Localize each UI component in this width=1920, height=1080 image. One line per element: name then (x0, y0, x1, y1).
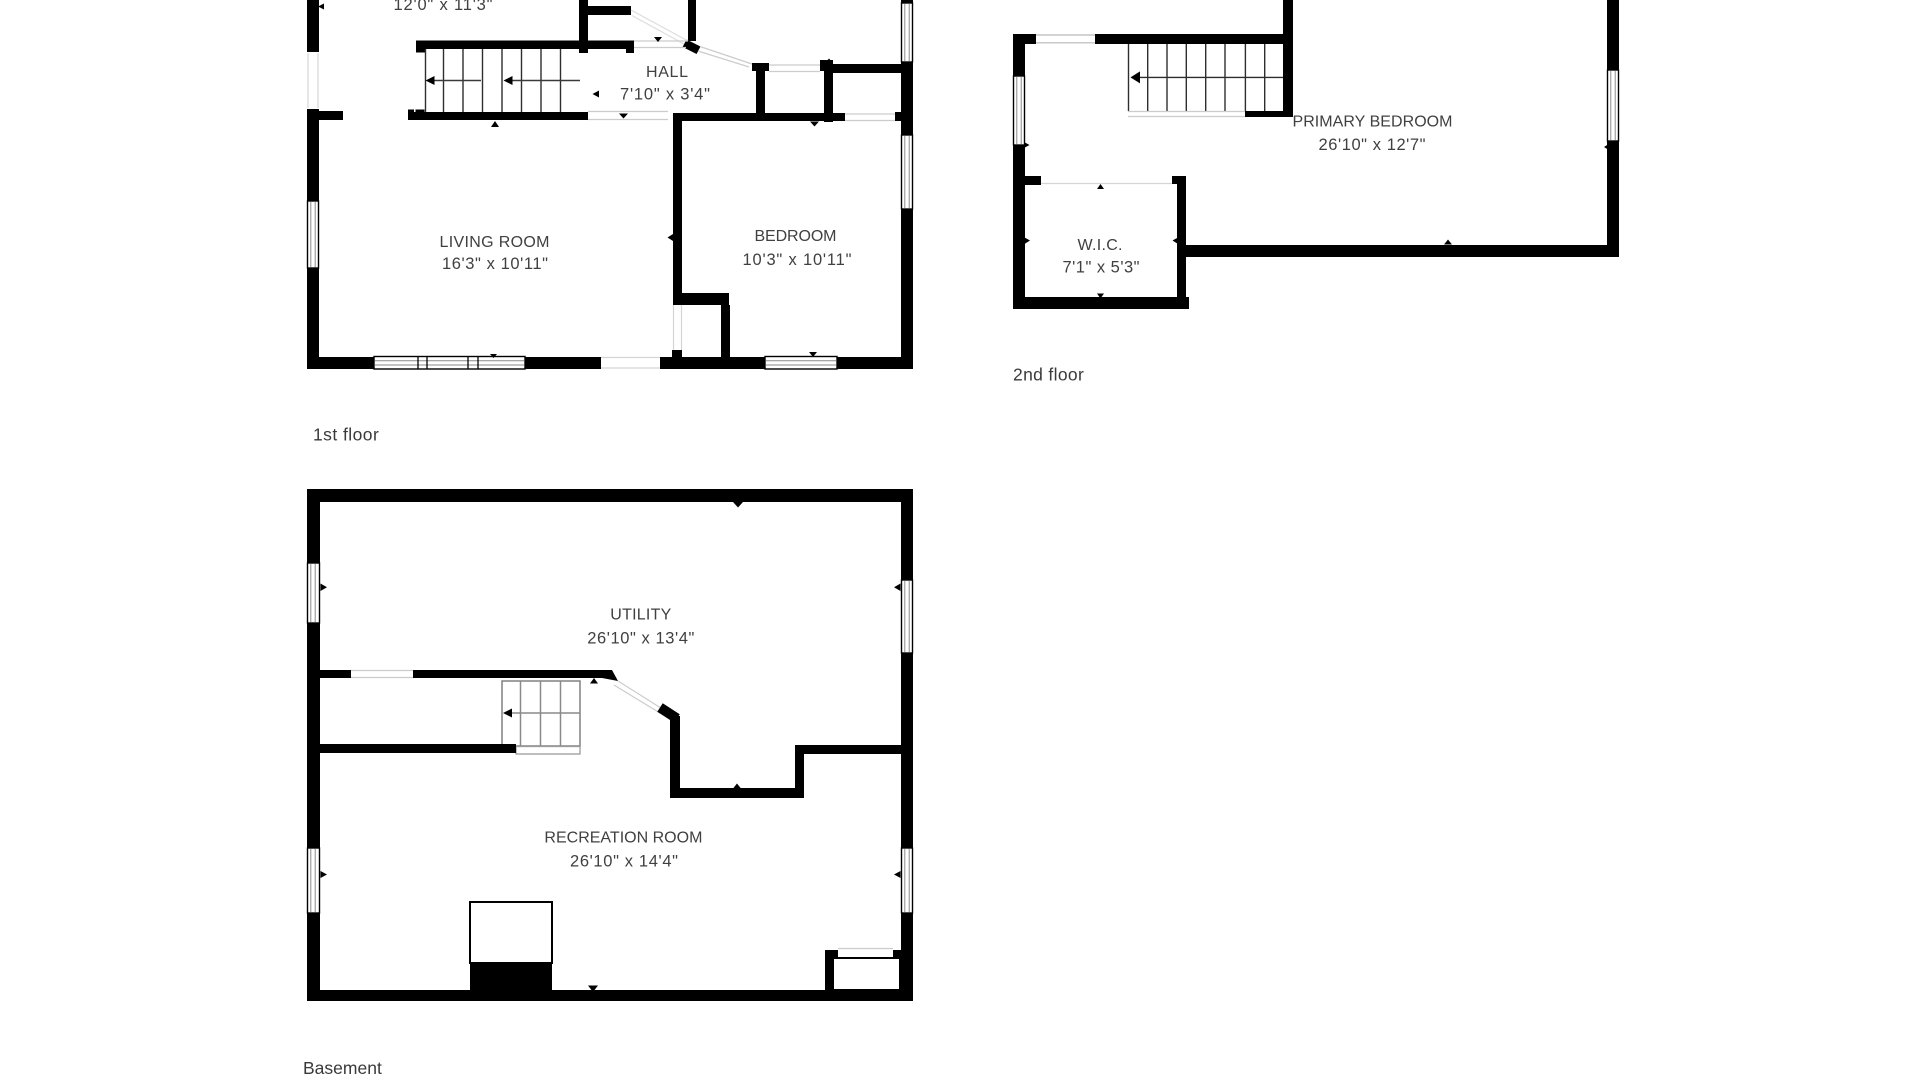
svg-text:16'3" x 10'11": 16'3" x 10'11" (442, 255, 548, 273)
svg-text:LIVING ROOM: LIVING ROOM (440, 234, 550, 251)
svg-text:26'10" x 12'7": 26'10" x 12'7" (1319, 136, 1426, 154)
svg-text:2nd floor: 2nd floor (1013, 365, 1084, 385)
svg-text:RECREATION ROOM: RECREATION ROOM (544, 830, 702, 847)
svg-text:W.I.C.: W.I.C. (1078, 237, 1123, 254)
svg-text:HALL: HALL (646, 64, 688, 81)
svg-text:BEDROOM: BEDROOM (755, 228, 837, 245)
svg-text:7'10" x 3'4": 7'10" x 3'4" (620, 86, 710, 104)
svg-text:7'1" x 5'3": 7'1" x 5'3" (1063, 259, 1140, 277)
svg-text:26'10" x 14'4": 26'10" x 14'4" (570, 853, 678, 871)
svg-text:Basement: Basement (303, 1058, 382, 1078)
svg-text:PRIMARY BEDROOM: PRIMARY BEDROOM (1293, 114, 1453, 131)
svg-text:10'3" x 10'11": 10'3" x 10'11" (743, 251, 852, 269)
svg-text:1st floor: 1st floor (313, 425, 379, 445)
svg-text:12'0" x 11'3": 12'0" x 11'3" (394, 0, 493, 14)
svg-text:UTILITY: UTILITY (610, 607, 671, 624)
svg-text:26'10" x 13'4": 26'10" x 13'4" (587, 630, 694, 648)
